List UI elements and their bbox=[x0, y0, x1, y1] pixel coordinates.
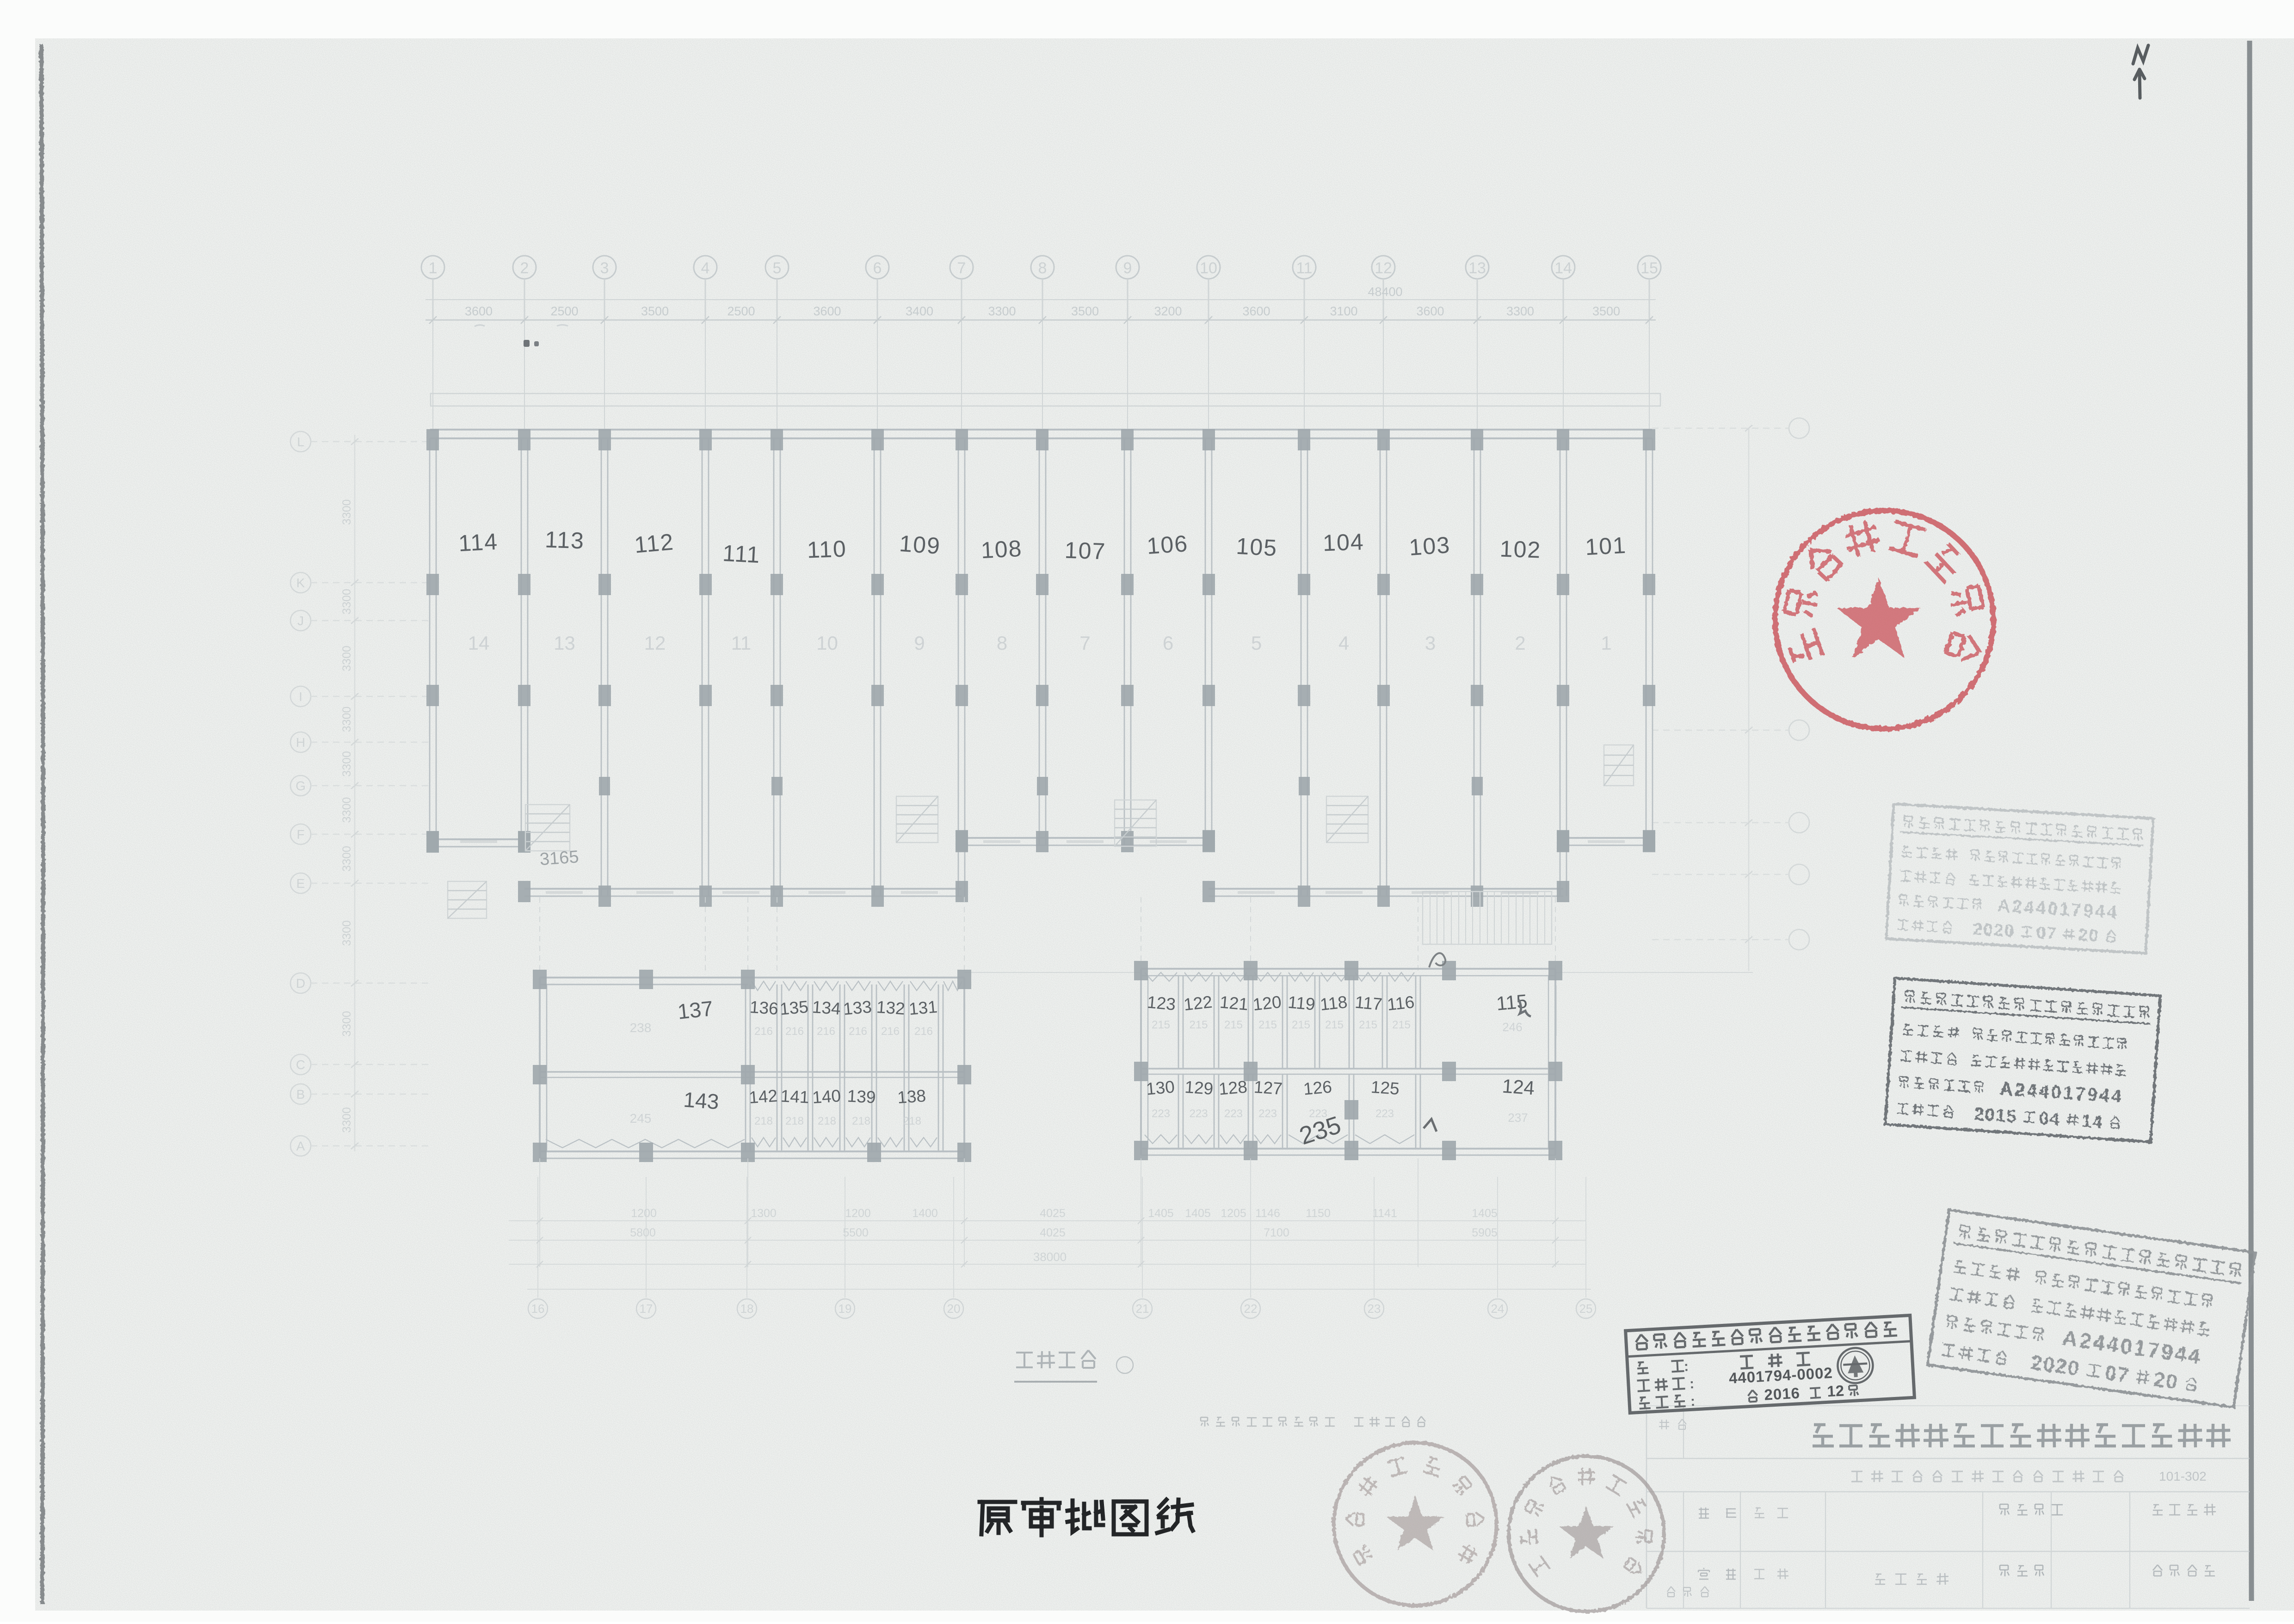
svg-text:3300: 3300 bbox=[340, 846, 353, 872]
svg-text:118: 118 bbox=[1319, 992, 1348, 1014]
svg-text:3300: 3300 bbox=[340, 797, 353, 823]
svg-text:B: B bbox=[296, 1087, 305, 1101]
svg-text:142: 142 bbox=[748, 1086, 778, 1107]
svg-text:14: 14 bbox=[468, 632, 490, 654]
svg-text:3300: 3300 bbox=[1506, 304, 1534, 318]
svg-text:G: G bbox=[296, 779, 306, 793]
svg-text:3500: 3500 bbox=[1071, 304, 1099, 318]
svg-text:130: 130 bbox=[1145, 1077, 1175, 1098]
svg-text:215: 215 bbox=[1292, 1019, 1310, 1031]
svg-text:3300: 3300 bbox=[340, 707, 353, 732]
svg-text:119: 119 bbox=[1287, 993, 1316, 1014]
svg-text:3600: 3600 bbox=[1242, 304, 1270, 318]
svg-text:112: 112 bbox=[633, 529, 675, 558]
svg-text:125: 125 bbox=[1370, 1077, 1400, 1098]
svg-text:4025: 4025 bbox=[1040, 1226, 1066, 1239]
svg-text:108: 108 bbox=[980, 535, 1023, 564]
svg-text:103: 103 bbox=[1408, 532, 1451, 560]
svg-text:14: 14 bbox=[2081, 1111, 2104, 1132]
svg-text:126: 126 bbox=[1302, 1077, 1332, 1098]
svg-text:25: 25 bbox=[1579, 1302, 1593, 1316]
svg-text:105: 105 bbox=[1235, 533, 1278, 561]
svg-text:136: 136 bbox=[749, 997, 779, 1018]
svg-text:216: 216 bbox=[849, 1025, 867, 1038]
svg-text:16: 16 bbox=[531, 1302, 545, 1316]
svg-text:216: 216 bbox=[817, 1025, 835, 1038]
svg-text:102: 102 bbox=[1499, 535, 1542, 563]
svg-text:216: 216 bbox=[914, 1025, 933, 1038]
svg-text:H: H bbox=[296, 735, 305, 750]
svg-text:216: 216 bbox=[785, 1025, 804, 1038]
svg-text:19: 19 bbox=[839, 1302, 852, 1316]
svg-text:3: 3 bbox=[600, 259, 609, 277]
svg-text:104: 104 bbox=[1322, 529, 1364, 556]
svg-text:3600: 3600 bbox=[465, 304, 493, 318]
svg-text:F: F bbox=[296, 827, 304, 842]
svg-text:218: 218 bbox=[818, 1115, 836, 1127]
svg-text:3300: 3300 bbox=[340, 1107, 353, 1133]
svg-text:223: 223 bbox=[1258, 1107, 1277, 1120]
svg-text:215: 215 bbox=[1325, 1019, 1344, 1031]
svg-text:111: 111 bbox=[722, 540, 761, 568]
svg-text:1: 1 bbox=[429, 259, 438, 277]
svg-text:6: 6 bbox=[1163, 632, 1173, 654]
svg-text:218: 218 bbox=[852, 1115, 870, 1127]
svg-text:138: 138 bbox=[897, 1086, 926, 1107]
svg-text:3600: 3600 bbox=[813, 304, 841, 318]
svg-text:216: 216 bbox=[881, 1025, 900, 1038]
svg-text:1405: 1405 bbox=[1185, 1207, 1211, 1220]
svg-text:1400: 1400 bbox=[912, 1207, 938, 1220]
svg-text:3: 3 bbox=[1425, 632, 1436, 654]
svg-text:5: 5 bbox=[773, 259, 782, 277]
svg-text:1205: 1205 bbox=[1221, 1207, 1246, 1220]
svg-text:1: 1 bbox=[1601, 632, 1611, 654]
svg-text:139: 139 bbox=[847, 1086, 876, 1107]
svg-text:237: 237 bbox=[1508, 1111, 1528, 1125]
svg-text:122: 122 bbox=[1183, 992, 1213, 1014]
svg-text:12: 12 bbox=[644, 632, 666, 654]
svg-text:120: 120 bbox=[1252, 992, 1283, 1014]
svg-text:24: 24 bbox=[1491, 1302, 1505, 1316]
svg-text:2020: 2020 bbox=[1972, 919, 2016, 941]
svg-text:133: 133 bbox=[842, 997, 872, 1018]
svg-text:113: 113 bbox=[544, 527, 585, 554]
svg-text:1200: 1200 bbox=[845, 1207, 871, 1220]
svg-text:107: 107 bbox=[1064, 537, 1106, 564]
svg-text:18: 18 bbox=[740, 1302, 754, 1316]
svg-text:127: 127 bbox=[1253, 1077, 1283, 1098]
svg-text:3500: 3500 bbox=[641, 304, 669, 318]
svg-text:3300: 3300 bbox=[340, 1011, 353, 1037]
svg-text:48400: 48400 bbox=[1368, 285, 1402, 299]
svg-text:215: 215 bbox=[1359, 1019, 1377, 1031]
svg-text:218: 218 bbox=[903, 1115, 921, 1127]
svg-text:3300: 3300 bbox=[340, 589, 353, 615]
svg-text:106: 106 bbox=[1146, 530, 1189, 559]
svg-text:9: 9 bbox=[914, 632, 925, 654]
svg-text:246: 246 bbox=[1502, 1020, 1522, 1034]
svg-text:4025: 4025 bbox=[1040, 1207, 1066, 1220]
svg-text:116: 116 bbox=[1386, 992, 1415, 1014]
svg-text:20: 20 bbox=[947, 1302, 961, 1316]
svg-text:5: 5 bbox=[1251, 632, 1262, 654]
svg-text:17: 17 bbox=[640, 1302, 653, 1316]
svg-text:K: K bbox=[296, 576, 305, 590]
svg-text:14: 14 bbox=[1554, 259, 1572, 277]
svg-text:101-302: 101-302 bbox=[2159, 1469, 2207, 1483]
svg-text:10: 10 bbox=[1200, 259, 1217, 277]
svg-text:4: 4 bbox=[701, 259, 710, 277]
svg-text:216: 216 bbox=[754, 1025, 773, 1038]
svg-text:1146: 1146 bbox=[1255, 1207, 1280, 1220]
svg-text:L: L bbox=[297, 435, 304, 449]
svg-text:215: 215 bbox=[1258, 1019, 1277, 1031]
svg-text:121: 121 bbox=[1219, 992, 1249, 1014]
svg-text:129: 129 bbox=[1184, 1077, 1214, 1098]
svg-text:1300: 1300 bbox=[751, 1207, 777, 1220]
svg-text:8: 8 bbox=[1038, 259, 1047, 277]
svg-text:9: 9 bbox=[1123, 259, 1132, 277]
svg-text:143: 143 bbox=[683, 1087, 720, 1113]
svg-text:124: 124 bbox=[1501, 1075, 1535, 1099]
svg-text:5500: 5500 bbox=[843, 1226, 869, 1239]
svg-text:3300: 3300 bbox=[340, 751, 353, 777]
svg-text:2: 2 bbox=[520, 259, 529, 277]
svg-text:22: 22 bbox=[1244, 1302, 1258, 1316]
svg-text:4: 4 bbox=[1338, 632, 1349, 654]
svg-text:223: 223 bbox=[1152, 1107, 1170, 1120]
svg-text:114: 114 bbox=[458, 529, 499, 556]
svg-text:123: 123 bbox=[1147, 992, 1177, 1014]
svg-text:E: E bbox=[296, 876, 305, 891]
svg-text:A: A bbox=[296, 1139, 305, 1153]
svg-text:1405: 1405 bbox=[1472, 1207, 1498, 1220]
svg-text:5905: 5905 bbox=[1472, 1226, 1498, 1239]
svg-text:11: 11 bbox=[731, 632, 752, 654]
svg-text:215: 215 bbox=[1152, 1019, 1170, 1031]
svg-text:1405: 1405 bbox=[1148, 1207, 1174, 1220]
svg-text::: : bbox=[1683, 1359, 1689, 1374]
svg-text:3200: 3200 bbox=[1154, 304, 1182, 318]
svg-text:3400: 3400 bbox=[906, 304, 933, 318]
svg-text::: : bbox=[1690, 1394, 1696, 1409]
svg-text:I: I bbox=[299, 689, 302, 704]
svg-text:23: 23 bbox=[1368, 1302, 1381, 1316]
svg-text:101: 101 bbox=[1585, 532, 1627, 560]
svg-text:J: J bbox=[297, 614, 304, 628]
svg-text:3165: 3165 bbox=[539, 847, 580, 869]
svg-text:218: 218 bbox=[754, 1115, 773, 1127]
svg-text:141: 141 bbox=[780, 1086, 810, 1107]
svg-text:3300: 3300 bbox=[988, 304, 1016, 318]
svg-text:215: 215 bbox=[1224, 1019, 1243, 1031]
svg-text:21: 21 bbox=[1136, 1302, 1149, 1316]
svg-text:3300: 3300 bbox=[340, 499, 353, 525]
svg-text:117: 117 bbox=[1354, 993, 1383, 1014]
svg-text:6: 6 bbox=[873, 259, 882, 277]
svg-text:137: 137 bbox=[676, 996, 714, 1024]
svg-text:38000: 38000 bbox=[1033, 1250, 1067, 1264]
svg-text:218: 218 bbox=[785, 1115, 804, 1127]
svg-text:215: 215 bbox=[1392, 1019, 1411, 1031]
svg-text:2016: 2016 bbox=[1764, 1384, 1801, 1403]
svg-text:131: 131 bbox=[908, 997, 938, 1018]
svg-text:215: 215 bbox=[1189, 1019, 1208, 1031]
svg-text:1200: 1200 bbox=[631, 1207, 657, 1220]
svg-text:15: 15 bbox=[1640, 259, 1658, 277]
svg-text:11: 11 bbox=[1296, 259, 1312, 277]
svg-text:8: 8 bbox=[997, 632, 1007, 654]
svg-text:07: 07 bbox=[2035, 923, 2058, 943]
svg-text:3100: 3100 bbox=[1330, 304, 1357, 318]
svg-text:3600: 3600 bbox=[1416, 304, 1444, 318]
svg-text:3300: 3300 bbox=[340, 646, 353, 671]
svg-text:223: 223 bbox=[1375, 1107, 1394, 1120]
svg-text:110: 110 bbox=[807, 536, 847, 563]
svg-text:132: 132 bbox=[876, 997, 906, 1018]
svg-text:2: 2 bbox=[1515, 632, 1525, 654]
svg-text:7100: 7100 bbox=[1264, 1226, 1289, 1239]
svg-text:223: 223 bbox=[1224, 1107, 1243, 1120]
svg-text:109: 109 bbox=[899, 530, 942, 559]
svg-text:2015: 2015 bbox=[1973, 1104, 2018, 1126]
svg-text:13: 13 bbox=[1468, 259, 1486, 277]
svg-text:20: 20 bbox=[2152, 1368, 2180, 1394]
svg-text:13: 13 bbox=[554, 632, 575, 654]
svg-text:C: C bbox=[296, 1058, 305, 1072]
svg-text:10: 10 bbox=[816, 632, 838, 654]
svg-text:3300: 3300 bbox=[340, 920, 353, 946]
svg-text:20: 20 bbox=[2078, 925, 2100, 945]
svg-text:223: 223 bbox=[1189, 1107, 1208, 1120]
svg-text:134: 134 bbox=[812, 997, 841, 1018]
svg-text:2500: 2500 bbox=[727, 304, 755, 318]
svg-text:7: 7 bbox=[957, 259, 966, 277]
svg-text:245: 245 bbox=[630, 1111, 652, 1126]
svg-text:12: 12 bbox=[1375, 259, 1392, 277]
svg-text:04: 04 bbox=[2038, 1108, 2061, 1129]
svg-text:7: 7 bbox=[1079, 632, 1090, 654]
svg-text:2500: 2500 bbox=[550, 304, 578, 318]
svg-text:07: 07 bbox=[2103, 1361, 2131, 1387]
svg-text:D: D bbox=[296, 976, 305, 990]
svg-text:140: 140 bbox=[812, 1086, 841, 1107]
svg-text:3500: 3500 bbox=[1592, 304, 1620, 318]
svg-text:128: 128 bbox=[1218, 1077, 1248, 1098]
svg-text:238: 238 bbox=[630, 1021, 652, 1035]
svg-text:1141: 1141 bbox=[1372, 1207, 1397, 1220]
svg-text:5800: 5800 bbox=[630, 1226, 656, 1239]
svg-text::: : bbox=[1689, 1376, 1695, 1391]
svg-text:135: 135 bbox=[779, 997, 809, 1018]
svg-text:1150: 1150 bbox=[1306, 1207, 1331, 1220]
svg-text:12: 12 bbox=[1826, 1382, 1844, 1400]
